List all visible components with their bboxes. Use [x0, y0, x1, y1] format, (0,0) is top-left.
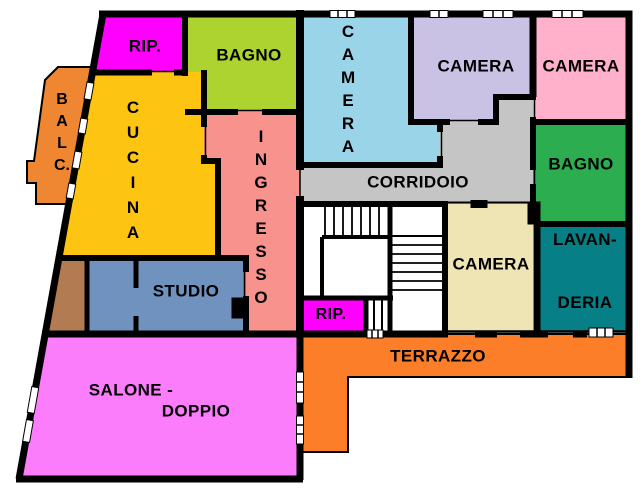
- label-lavanderia-line1: LAVAN-: [553, 229, 617, 250]
- label-lavanderia-line2: DERIA: [553, 292, 617, 313]
- label-balcone: BALC.: [52, 89, 72, 177]
- label-lavanderia: LAVAN- DERIA: [553, 187, 617, 355]
- label-rip2: RIP.: [316, 306, 347, 324]
- label-rip1: RIP.: [129, 38, 161, 57]
- label-studio: STUDIO: [153, 283, 220, 302]
- label-bagno-top: BAGNO: [216, 47, 281, 66]
- label-bagno-est: BAGNO: [548, 156, 613, 175]
- label-camera-sud: CAMERA: [452, 256, 529, 275]
- label-camera-est: CAMERA: [542, 58, 619, 77]
- label-camera-nord: CAMERA: [341, 20, 355, 158]
- room-salone: [19, 334, 300, 479]
- label-camera-centro: CAMERA: [437, 58, 514, 77]
- label-salone-line2: DOPPIO: [162, 403, 231, 422]
- label-terrazzo: TERRAZZO: [390, 348, 486, 367]
- label-corridoio: CORRIDOIO: [367, 174, 469, 193]
- label-salone-line1: SALONE -: [89, 382, 173, 401]
- floor-plan: RIP. BAGNO CAMERA CAMERA CAMERA BAGNO CO…: [0, 0, 642, 495]
- label-cucina: CUCINA: [126, 95, 140, 245]
- label-ingresso: INGRESSO: [254, 125, 268, 309]
